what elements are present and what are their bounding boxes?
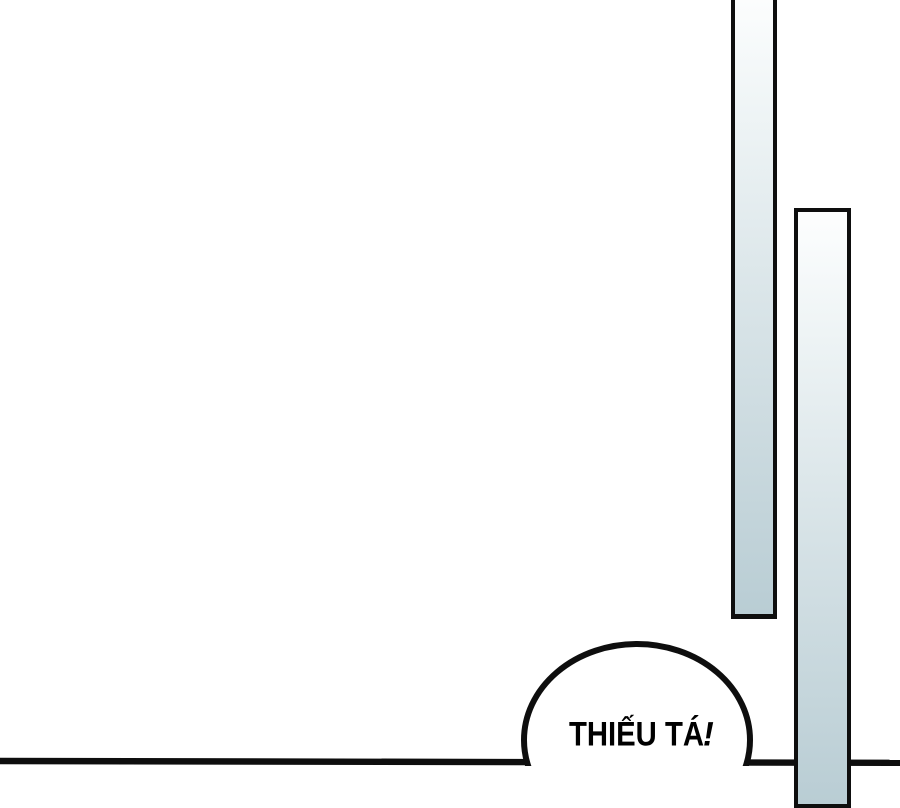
svg-text:THIẾU TÁ: THIẾU TÁ — [569, 716, 704, 754]
